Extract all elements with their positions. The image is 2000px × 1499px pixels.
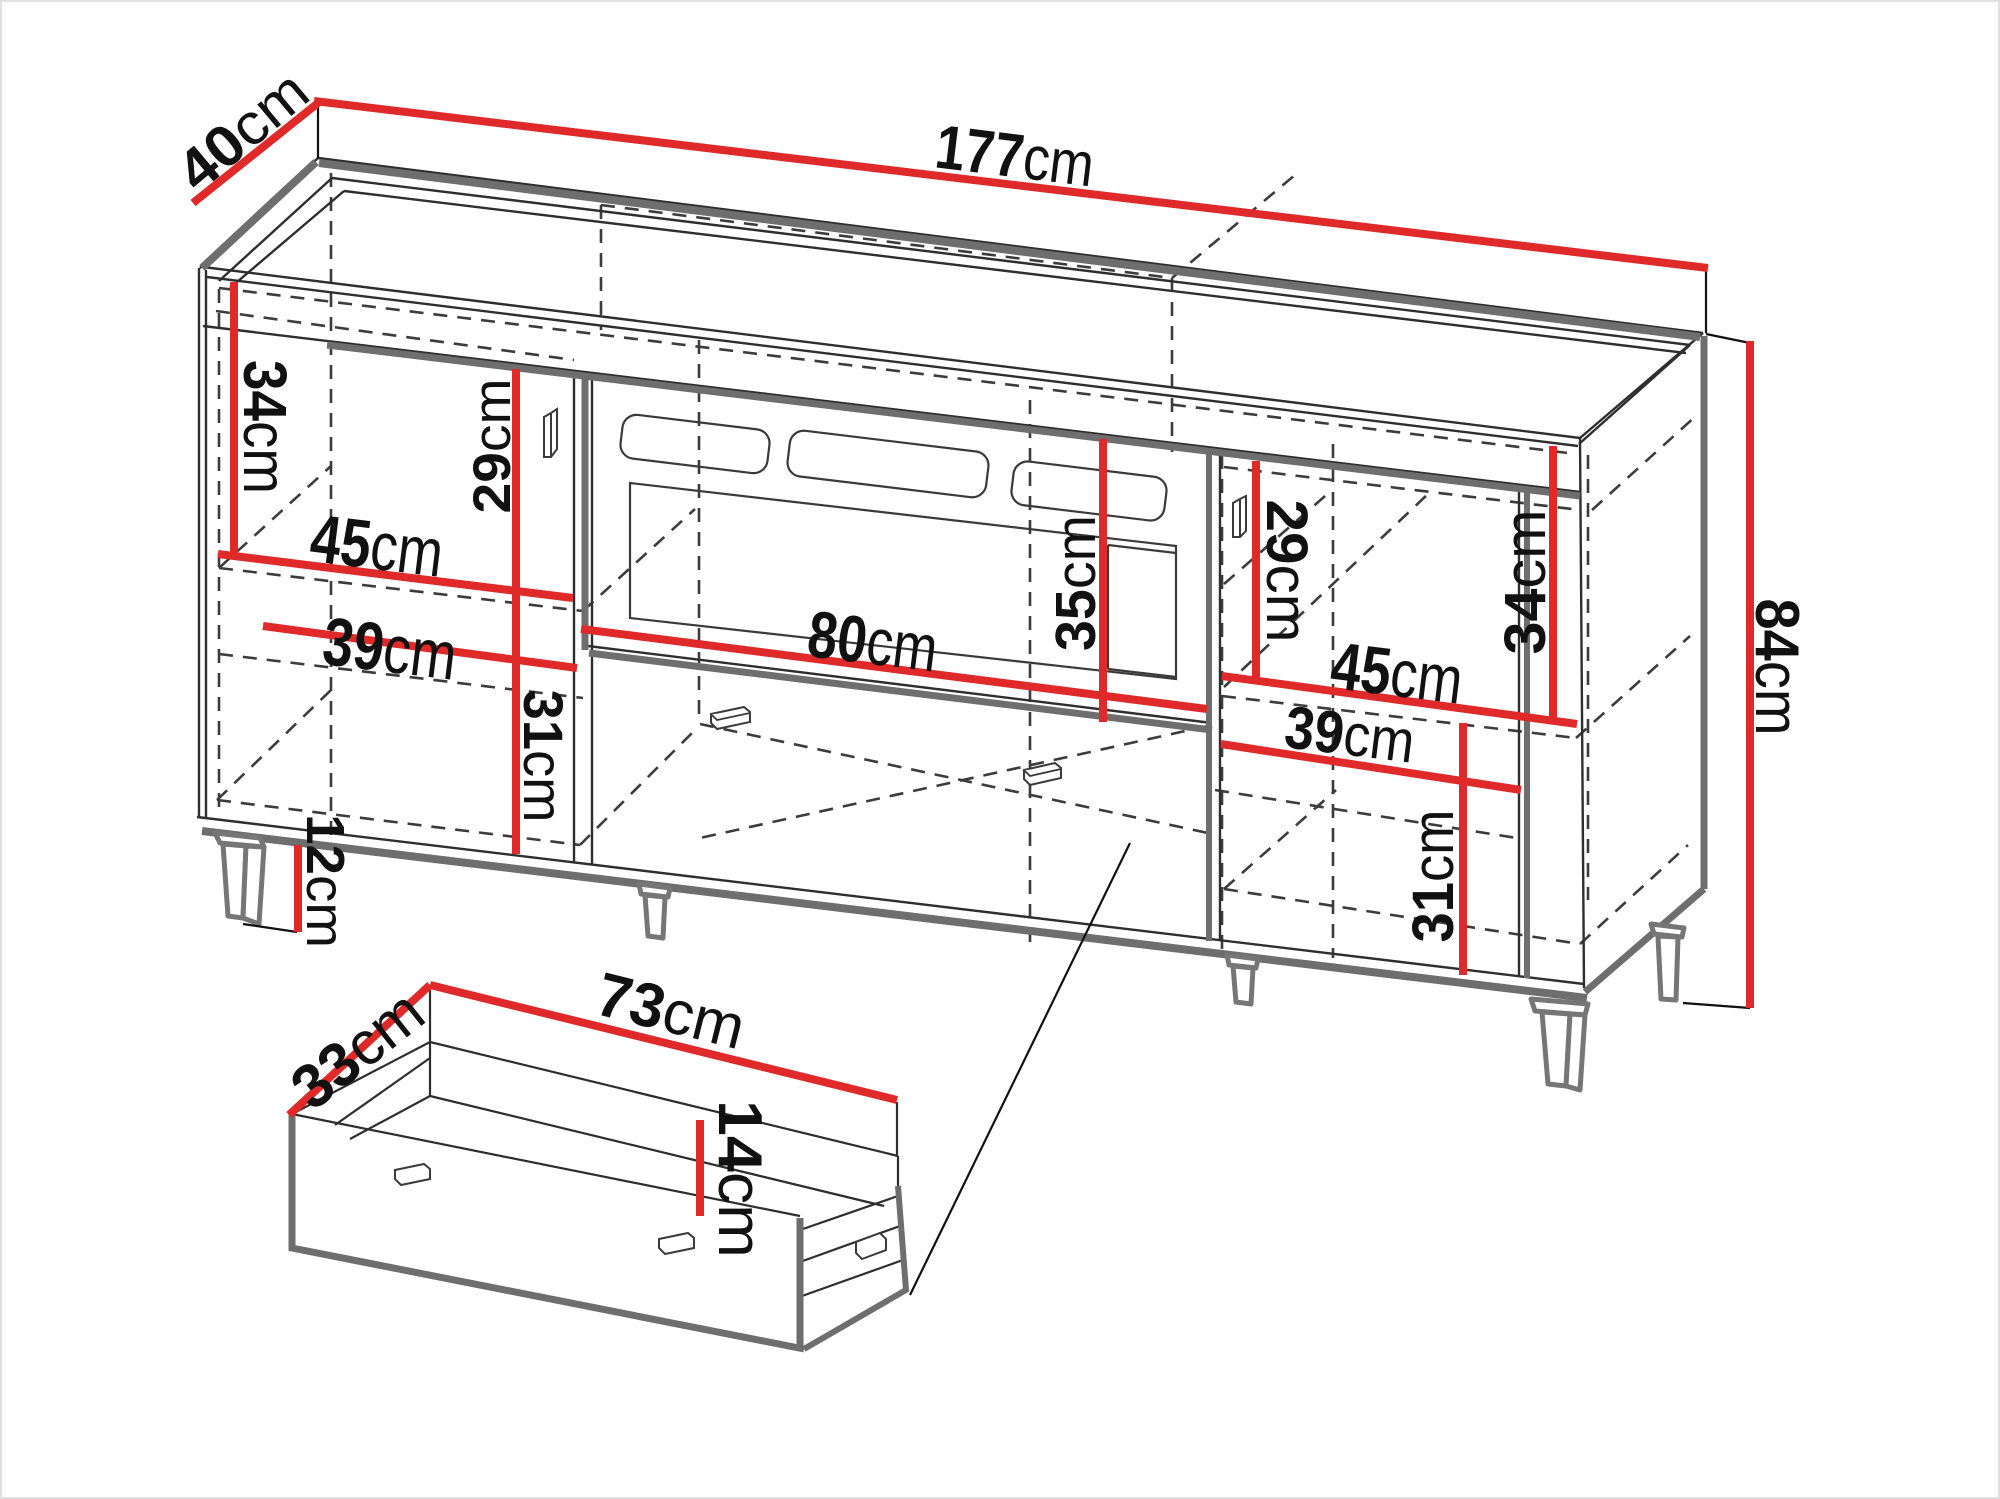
svg-text:39cm: 39cm xyxy=(319,603,461,695)
svg-text:14cm: 14cm xyxy=(705,1100,774,1258)
svg-text:84cm: 84cm xyxy=(1742,599,1811,736)
svg-text:12cm: 12cm xyxy=(295,814,355,948)
svg-text:45cm: 45cm xyxy=(306,500,447,592)
svg-text:31cm: 31cm xyxy=(1401,810,1466,943)
svg-text:34cm: 34cm xyxy=(231,360,299,494)
svg-text:29cm: 29cm xyxy=(463,379,522,514)
svg-text:34cm: 34cm xyxy=(1493,510,1558,655)
svg-text:80cm: 80cm xyxy=(804,596,942,685)
svg-text:35cm: 35cm xyxy=(1044,515,1108,651)
svg-text:29cm: 29cm xyxy=(1254,500,1319,643)
svg-text:31cm: 31cm xyxy=(512,690,575,823)
